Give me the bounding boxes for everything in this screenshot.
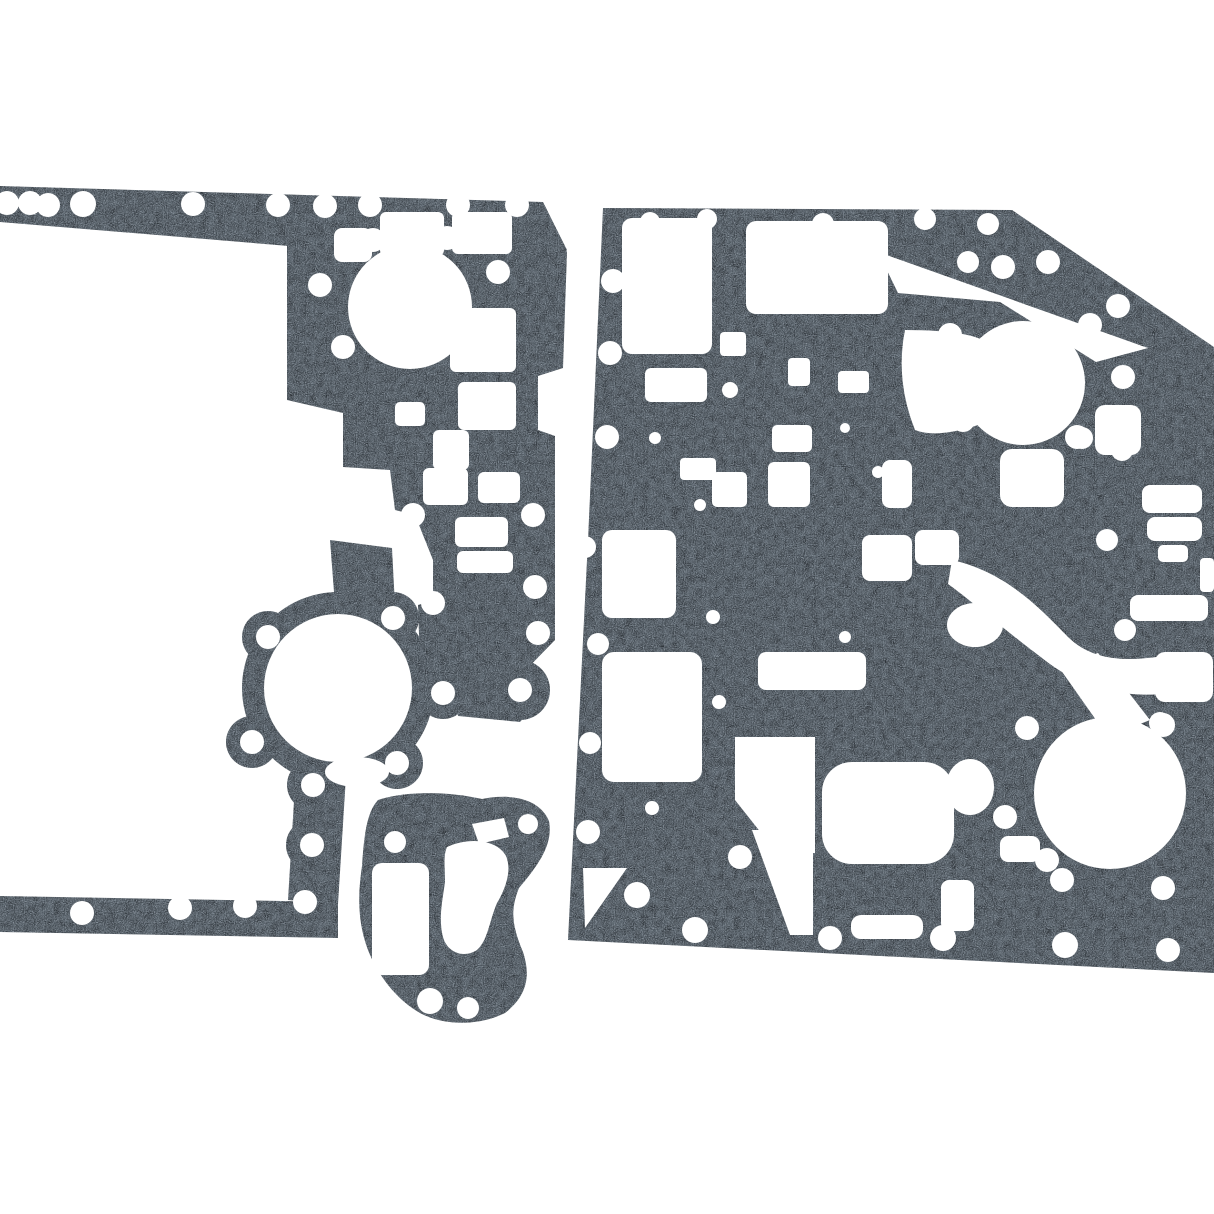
gasket-valve-plate-material [560,200,1214,982]
gasket-water-outlet-small [350,788,562,1032]
gasket-water-outlet-material [350,788,562,1032]
gasket-set-illustration [0,0,1214,1214]
product-photo [0,0,1214,1214]
gasket-valve-plate-right [560,200,1214,982]
